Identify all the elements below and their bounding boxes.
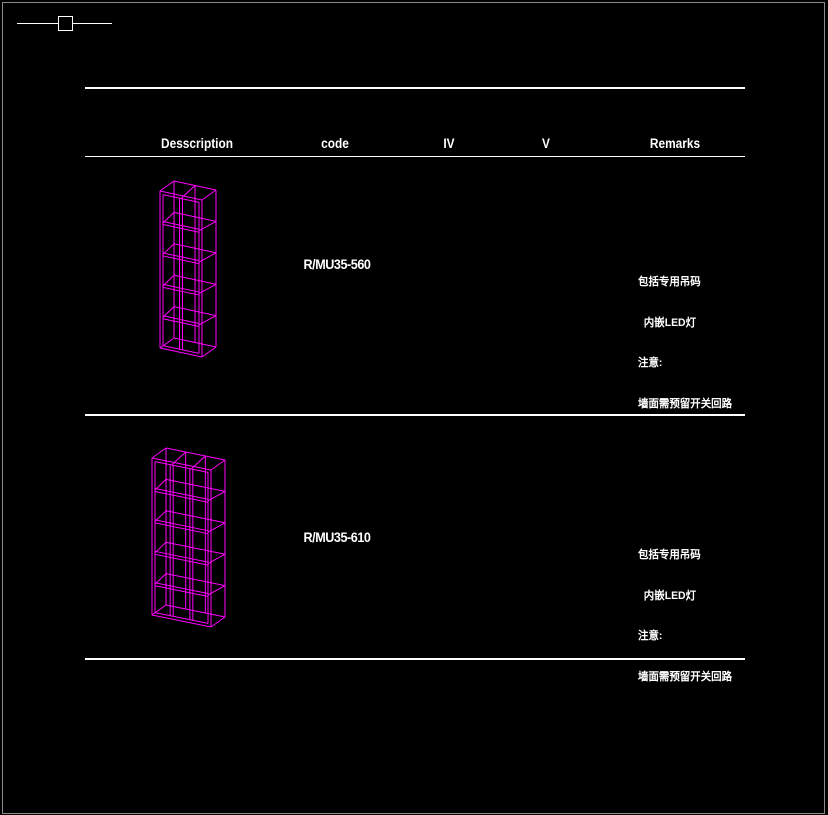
remarks-line: 墙面需预留开关回路 [638,398,732,412]
cabinet-wireframe-2 [152,448,225,627]
remarks-line: 内嵌LED灯 [638,317,732,331]
remarks-block-row2: 包括专用吊码 内嵌LED灯 注意: 墙面需预留开关回路 [638,522,732,711]
remarks-line: 注意: [638,630,732,644]
code-label-row1: R/MU35-560 [274,256,400,272]
remarks-block-row1: 包括专用吊码 内嵌LED灯 注意: 墙面需预留开关回路 [638,249,732,438]
remarks-line: 包括专用吊码 [638,276,732,290]
cabinet-wireframe-1 [160,181,216,357]
remarks-line: 注意: [638,357,732,371]
remarks-line: 包括专用吊码 [638,549,732,563]
remarks-line: 墙面需预留开关回路 [638,671,732,685]
cad-sheet: Desscription code IV V Remarks R/MU35-56… [0,0,828,815]
code-label-row2: R/MU35-610 [274,529,400,545]
remarks-line: 内嵌LED灯 [638,590,732,604]
